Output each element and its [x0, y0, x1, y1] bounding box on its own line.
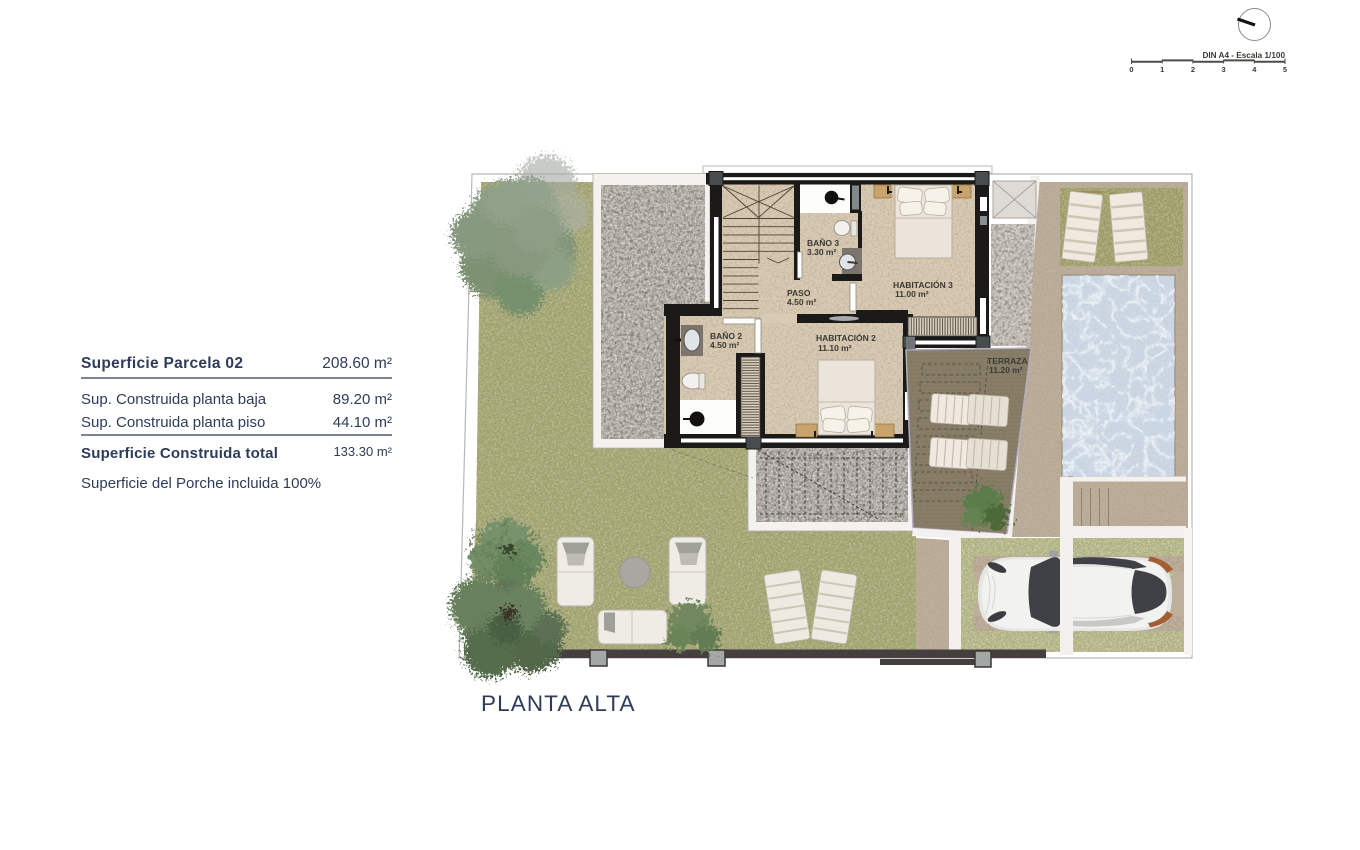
- svg-text:208.60 m²: 208.60 m²: [322, 355, 392, 372]
- svg-text:3: 3: [1222, 65, 1226, 74]
- svg-text:4.50 m²: 4.50 m²: [787, 297, 816, 307]
- svg-text:Sup. Construida planta piso: Sup. Construida planta piso: [81, 414, 265, 431]
- svg-text:1: 1: [1160, 65, 1164, 74]
- svg-text:11.20 m²: 11.20 m²: [989, 365, 1023, 375]
- svg-text:44.10 m²: 44.10 m²: [333, 414, 392, 431]
- svg-text:3.30 m²: 3.30 m²: [807, 247, 836, 257]
- svg-text:0: 0: [1129, 65, 1133, 74]
- svg-text:HABITACIÓN 2: HABITACIÓN 2: [816, 332, 876, 343]
- svg-text:Sup. Construida planta baja: Sup. Construida planta baja: [81, 391, 267, 408]
- svg-text:Superficie Parcela 02: Superficie Parcela 02: [81, 355, 243, 372]
- svg-text:89.20 m²: 89.20 m²: [333, 391, 392, 408]
- svg-text:2: 2: [1191, 65, 1195, 74]
- svg-text:11.10 m²: 11.10 m²: [818, 343, 852, 353]
- svg-text:133.30 m²: 133.30 m²: [333, 444, 392, 459]
- svg-text:11.00 m²: 11.00 m²: [895, 289, 929, 299]
- svg-text:Superficie del Porche incluida: Superficie del Porche incluida 100%: [81, 475, 321, 492]
- svg-text:Superficie Construida total: Superficie Construida total: [81, 445, 278, 462]
- svg-text:4.50 m²: 4.50 m²: [710, 340, 739, 350]
- svg-text:PLANTA ALTA: PLANTA ALTA: [481, 691, 636, 716]
- svg-text:5: 5: [1283, 65, 1287, 74]
- svg-text:DIN A4 - Escala 1/100: DIN A4 - Escala 1/100: [1202, 51, 1285, 60]
